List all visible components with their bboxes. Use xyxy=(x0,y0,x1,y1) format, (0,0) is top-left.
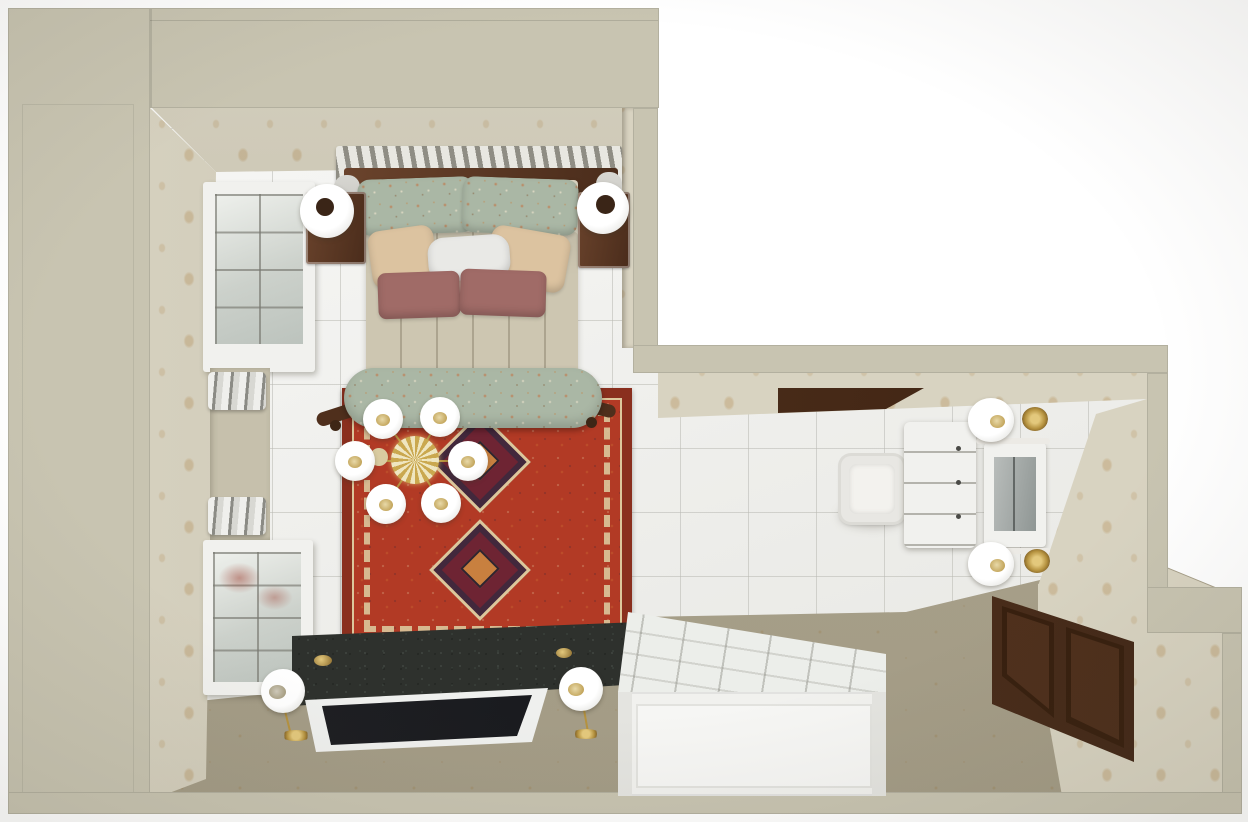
wall-step xyxy=(1147,587,1242,633)
pillow-floral-right xyxy=(461,176,579,236)
wall-dressing-right xyxy=(1147,373,1168,591)
floor-lamp-right-base xyxy=(572,729,600,739)
wardrobe-lower-glass-reflection xyxy=(213,552,301,682)
wardrobe-lower-glass xyxy=(213,552,301,682)
vanity-table xyxy=(904,422,976,548)
chandelier-globe xyxy=(366,484,406,524)
vanity-chair-cushion xyxy=(849,464,895,514)
pillow-mauve-right xyxy=(459,269,547,318)
wardrobe-upper xyxy=(203,182,315,372)
wall-right-lower xyxy=(1222,633,1242,813)
bedroom-floorplan-render xyxy=(0,0,1248,822)
chandelier-hub xyxy=(391,436,439,484)
pillow-mauve-left xyxy=(377,271,461,320)
outer-wall-left-seam xyxy=(22,104,134,796)
vanity-knob xyxy=(956,480,961,485)
sconce-bottom xyxy=(968,542,1014,586)
sconce-top-backplate xyxy=(1022,407,1048,431)
console-ornament-right xyxy=(556,648,572,658)
outer-wall-top xyxy=(150,8,659,108)
console-ornament-left xyxy=(314,655,332,666)
vanity-mirror-glass xyxy=(994,457,1036,531)
wardrobe-upper-glass xyxy=(215,194,303,344)
nightstand-lamp-right xyxy=(577,182,629,234)
floor-lamp-right xyxy=(559,667,603,711)
vanity-knob xyxy=(956,514,961,519)
nightstand-lamp-left xyxy=(300,184,354,238)
sconce-bottom-backplate xyxy=(1024,549,1050,573)
vanity-mirror xyxy=(984,443,1046,547)
nightstand-lamp-left-finial xyxy=(316,198,334,216)
sconce-top xyxy=(968,398,1014,442)
wall-bedroom-right xyxy=(633,108,658,348)
bench-foot-left xyxy=(330,420,341,431)
nightstand-lamp-right-finial xyxy=(596,195,615,214)
white-wardrobe-front-panel xyxy=(636,704,872,788)
chandelier-globe xyxy=(363,399,403,439)
chandelier-globe xyxy=(420,397,460,437)
chandelier-globe xyxy=(448,441,488,481)
outer-wall-top-seam xyxy=(150,20,658,21)
rug-medallion-2-core xyxy=(460,549,500,589)
floor-lamp-left xyxy=(261,669,305,713)
vanity-chair xyxy=(841,456,903,522)
floor-lamp-left-base xyxy=(281,730,311,741)
vanity-knob xyxy=(956,446,961,451)
wall-dressing-top xyxy=(633,345,1168,373)
linen-stack-top xyxy=(208,372,266,410)
chandelier-globe xyxy=(421,483,461,523)
linen-stack-bottom xyxy=(208,497,266,535)
bench-foot-right xyxy=(586,417,597,428)
white-wardrobe-post-left xyxy=(618,692,632,796)
white-wardrobe-front xyxy=(618,692,886,796)
white-wardrobe-post-right xyxy=(872,692,886,796)
chandelier-globe xyxy=(335,441,375,481)
